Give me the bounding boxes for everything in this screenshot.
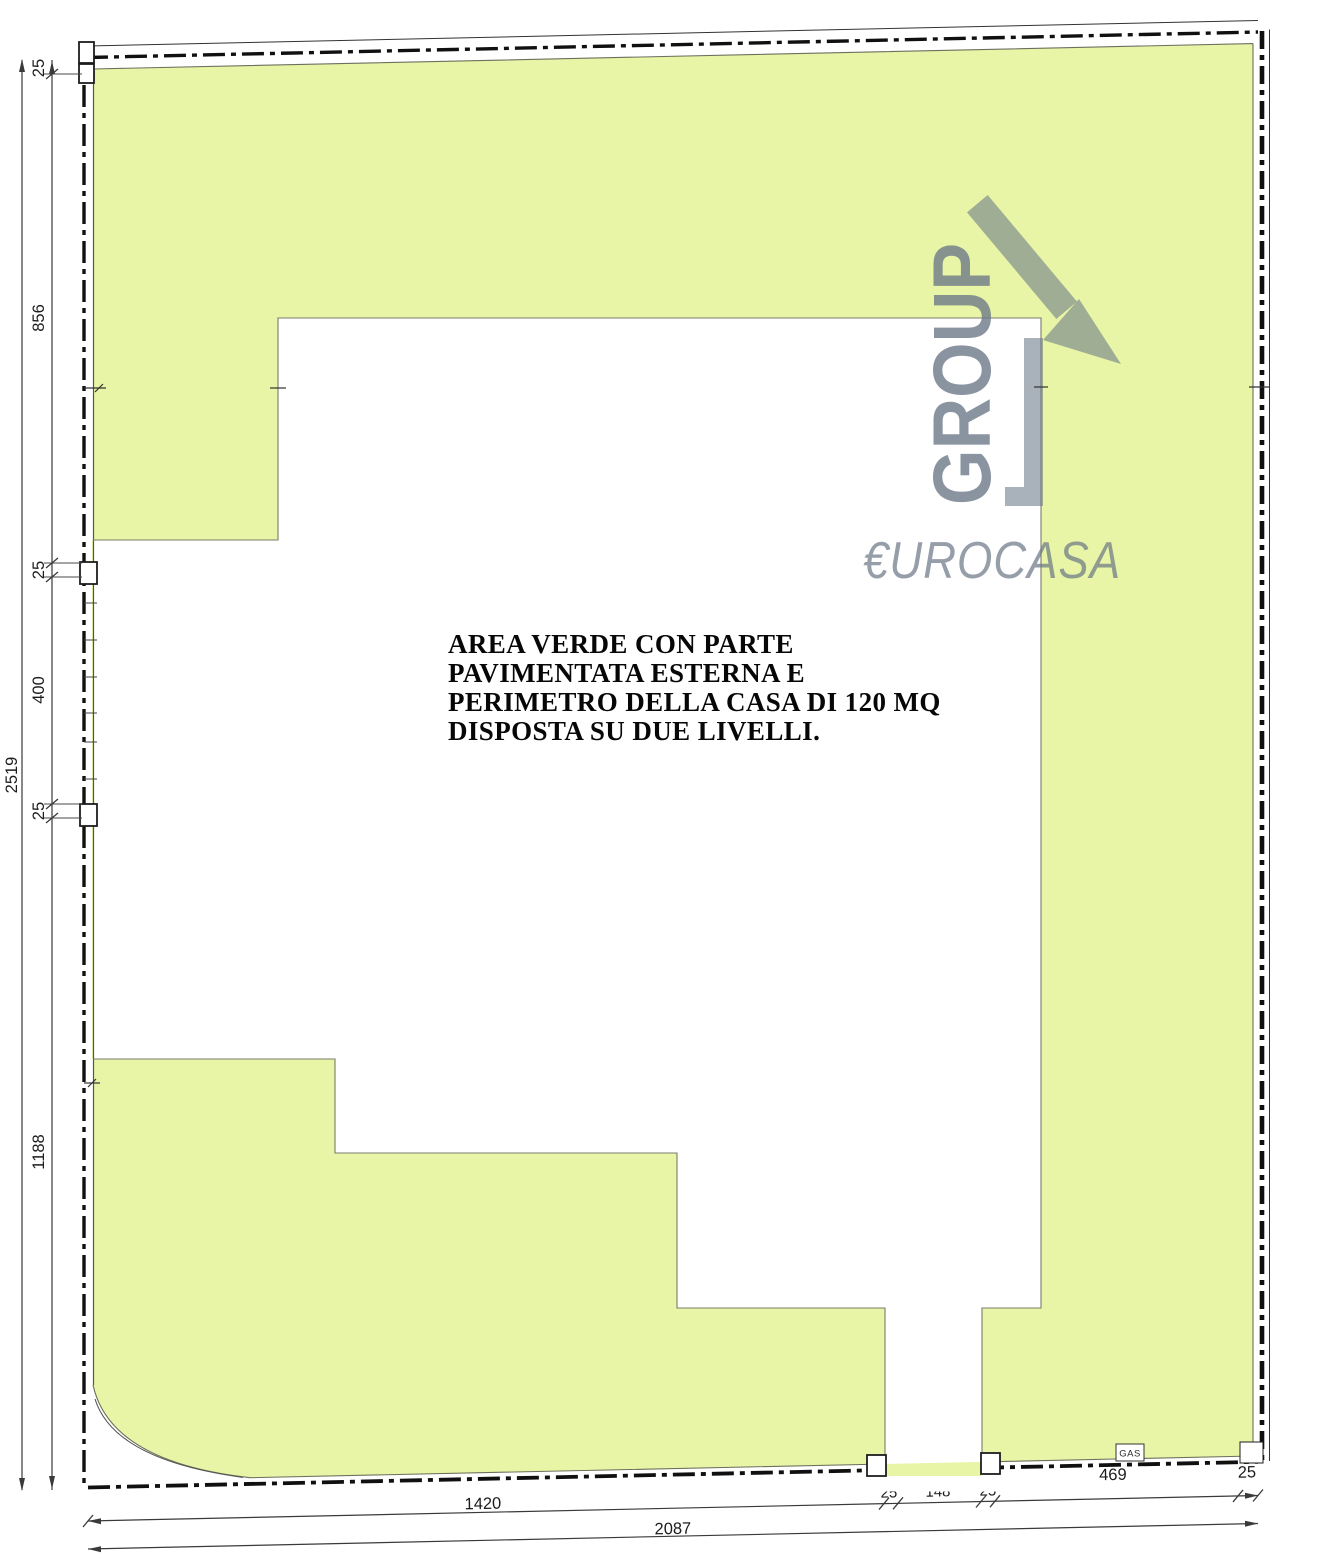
area-annotation: AREA VERDE CON PARTE PAVIMENTATA ESTERNA… xyxy=(448,629,941,746)
boundary-top-outer-line xyxy=(88,21,1258,47)
annotation-line-3: PERIMETRO DELLA CASA DI 120 MQ xyxy=(448,687,941,717)
gate-post xyxy=(867,1455,886,1476)
dim-left-1188: 1188 xyxy=(30,1134,48,1169)
dim-left-25b: 25 xyxy=(30,561,48,579)
site-plan-page: GROUP €UROCASA GAS xyxy=(0,0,1336,1568)
wall-break xyxy=(1240,1442,1263,1463)
annotation-line-2: PAVIMENTATA ESTERNA E xyxy=(448,658,805,688)
gate-post xyxy=(79,64,94,83)
dim-left-25c: 25 xyxy=(30,802,48,820)
dim-left-400: 400 xyxy=(30,676,48,704)
gas-meter-box: GAS xyxy=(1116,1444,1144,1461)
dim-left-total: 2519 xyxy=(3,757,21,794)
gate-post xyxy=(80,562,97,584)
dim-bottom-total: 2087 xyxy=(654,1520,691,1539)
logo-eurocasa-text: €UROCASA xyxy=(863,532,1121,590)
dim-bottom-469: 469 xyxy=(1099,1466,1127,1485)
left-dimension-lines xyxy=(22,60,82,1490)
annotation-line-1: AREA VERDE CON PARTE xyxy=(448,629,794,659)
dim-bottom-25a: 25 xyxy=(880,1484,897,1501)
gate-post xyxy=(981,1453,1000,1474)
dim-bottom-25r: 25 xyxy=(1238,1463,1257,1481)
left-dimension-arrows xyxy=(19,59,55,1491)
gate-post xyxy=(80,804,97,826)
logo-house-wall xyxy=(1005,338,1043,506)
dim-bottom-148: 148 xyxy=(925,1483,950,1501)
bottom-dimension-labels: 1420 469 25 2087 25 148 25 xyxy=(464,1463,1256,1538)
dim-bottom-1420: 1420 xyxy=(464,1495,501,1514)
logo-group-text: GROUP xyxy=(917,243,1008,505)
dim-left-25a: 25 xyxy=(30,59,48,77)
left-fence-ticks xyxy=(84,603,97,779)
gas-label: GAS xyxy=(1119,1449,1141,1460)
site-plan-drawing: GROUP €UROCASA GAS xyxy=(0,0,1336,1568)
left-dimension-labels: 2519 25 856 25 400 25 1188 xyxy=(3,59,48,1170)
gate-post xyxy=(79,42,94,63)
dim-left-856: 856 xyxy=(30,304,48,332)
annotation-line-4: DISPOSTA SU DUE LIVELLI. xyxy=(448,716,820,746)
plot-green-area xyxy=(92,44,1253,1478)
dim-bottom-25b: 25 xyxy=(979,1482,996,1499)
